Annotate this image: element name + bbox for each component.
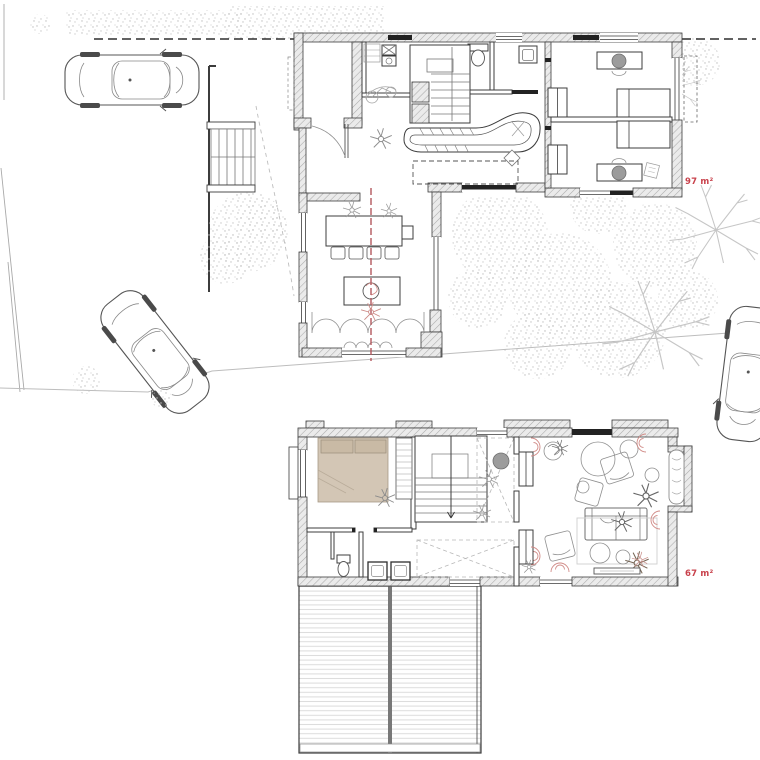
pendant-dot xyxy=(493,453,509,469)
toilet-icon xyxy=(337,555,350,577)
area-label-ground-floor: 97 m² xyxy=(685,177,713,187)
wardrobe xyxy=(396,438,412,499)
architectural-drawing: 97 m² 67 m² xyxy=(0,0,760,760)
master-bed xyxy=(318,438,388,502)
staircase-ground xyxy=(410,45,470,123)
island-fireplace xyxy=(344,277,400,305)
area-label-upper-floor: 67 m² xyxy=(685,569,713,579)
car-partial-icon xyxy=(709,304,760,445)
staircase-upper xyxy=(415,436,487,522)
entry-dashed-door xyxy=(288,57,294,110)
terrace-deck xyxy=(299,586,481,753)
sink-icon xyxy=(519,46,537,63)
site-plan-ground-floor xyxy=(0,4,760,444)
car-parked-icon xyxy=(65,49,199,111)
site-boundary-lines xyxy=(1,4,24,392)
floor-plan-drawing xyxy=(0,0,760,760)
lounge-chair xyxy=(669,450,684,504)
upper-floor-plan xyxy=(289,420,695,753)
